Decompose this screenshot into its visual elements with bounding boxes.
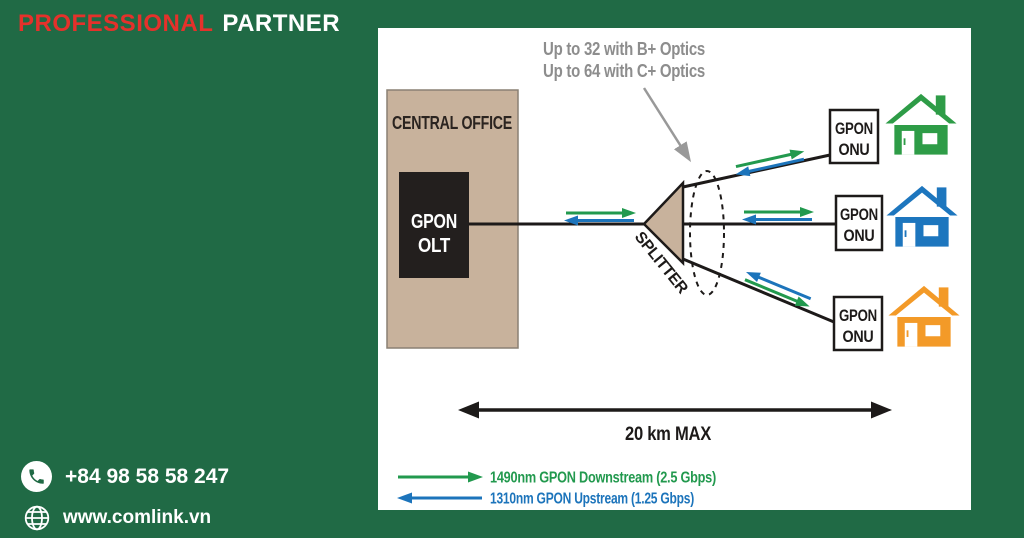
onu-1-label-line1: GPON xyxy=(835,119,873,138)
phone-icon xyxy=(21,461,52,492)
arrow-pair-drop2 xyxy=(742,207,814,225)
annotation-arrow xyxy=(644,88,689,159)
legend-downstream-arrow xyxy=(398,472,483,483)
onu-3-label-line1: GPON xyxy=(839,306,877,325)
house-icon-blue xyxy=(886,186,957,247)
house-icon-orange xyxy=(888,286,959,347)
central-office-label: CENTRAL OFFICE xyxy=(392,113,512,133)
house-icon-green xyxy=(885,94,956,155)
annotation-line1: Up to 32 with B+ Optics xyxy=(543,38,705,59)
distance-arrow xyxy=(458,402,892,419)
distance-label: 20 km MAX xyxy=(625,424,712,445)
olt-label-line1: GPON xyxy=(411,211,457,233)
onu-1-label-line2: ONU xyxy=(839,140,870,159)
contact-website: www.comlink.vn xyxy=(24,505,211,531)
website-url: www.comlink.vn xyxy=(63,507,211,529)
legend-upstream-label: 1310nm GPON Upstream (1.25 Gbps) xyxy=(490,491,694,508)
onu-2-label-line2: ONU xyxy=(844,226,875,245)
olt-label-line2: OLT xyxy=(418,235,450,257)
brand-word-professional: PROFESSIONAL xyxy=(18,10,213,37)
phone-number: +84 98 58 58 247 xyxy=(65,465,229,489)
legend-downstream-label: 1490nm GPON Downstream (2.5 Gbps) xyxy=(490,470,716,487)
onu-3-label-line2: ONU xyxy=(843,327,874,346)
diagram-panel: CENTRAL OFFICE GPON OLT Up to 32 with B+… xyxy=(378,28,971,510)
globe-icon xyxy=(24,505,50,531)
drop-line-3 xyxy=(683,259,834,322)
splitter-ellipse xyxy=(690,171,724,295)
brand-lockup: PROFESSIONALPARTNER xyxy=(18,10,340,38)
annotation-line2: Up to 64 with C+ Optics xyxy=(543,60,705,81)
legend-upstream-arrow xyxy=(397,493,482,504)
contact-phone: +84 98 58 58 247 xyxy=(21,461,229,492)
onu-2-label-line1: GPON xyxy=(840,205,878,224)
brand-word-partner: PARTNER xyxy=(222,10,340,37)
